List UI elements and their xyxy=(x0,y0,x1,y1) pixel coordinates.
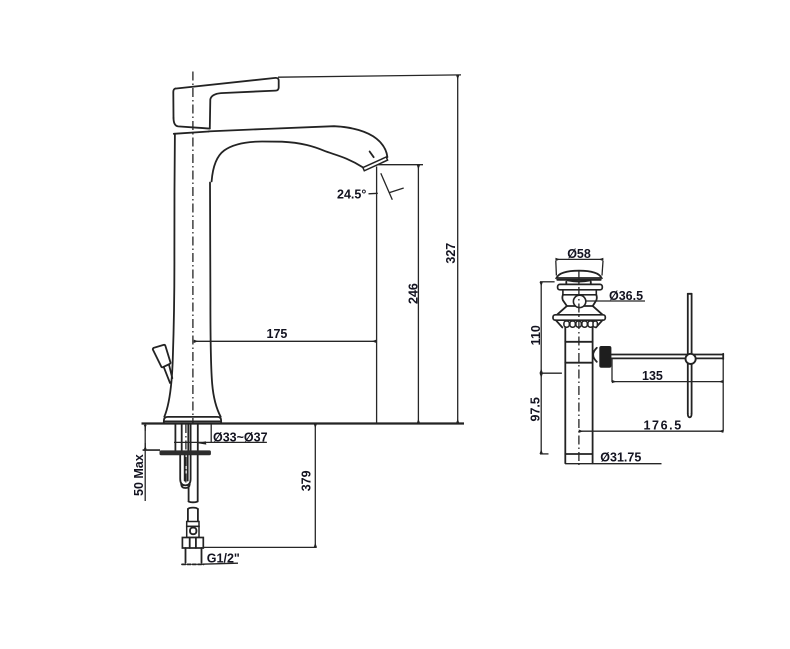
svg-text:175: 175 xyxy=(267,327,288,341)
svg-text:24.5°: 24.5° xyxy=(337,188,366,202)
svg-text:Ø31.75: Ø31.75 xyxy=(600,450,641,464)
svg-text:97.5: 97.5 xyxy=(529,397,543,421)
svg-text:Ø36.5: Ø36.5 xyxy=(609,289,643,303)
svg-text:176.5: 176.5 xyxy=(644,419,683,433)
svg-text:Ø33~Ø37: Ø33~Ø37 xyxy=(213,430,268,444)
svg-text:379: 379 xyxy=(300,470,314,491)
svg-text:110: 110 xyxy=(529,325,543,345)
svg-text:50 Max: 50 Max xyxy=(132,454,146,496)
svg-text:327: 327 xyxy=(444,243,458,264)
svg-text:135: 135 xyxy=(642,369,663,383)
svg-text:246: 246 xyxy=(406,283,420,304)
